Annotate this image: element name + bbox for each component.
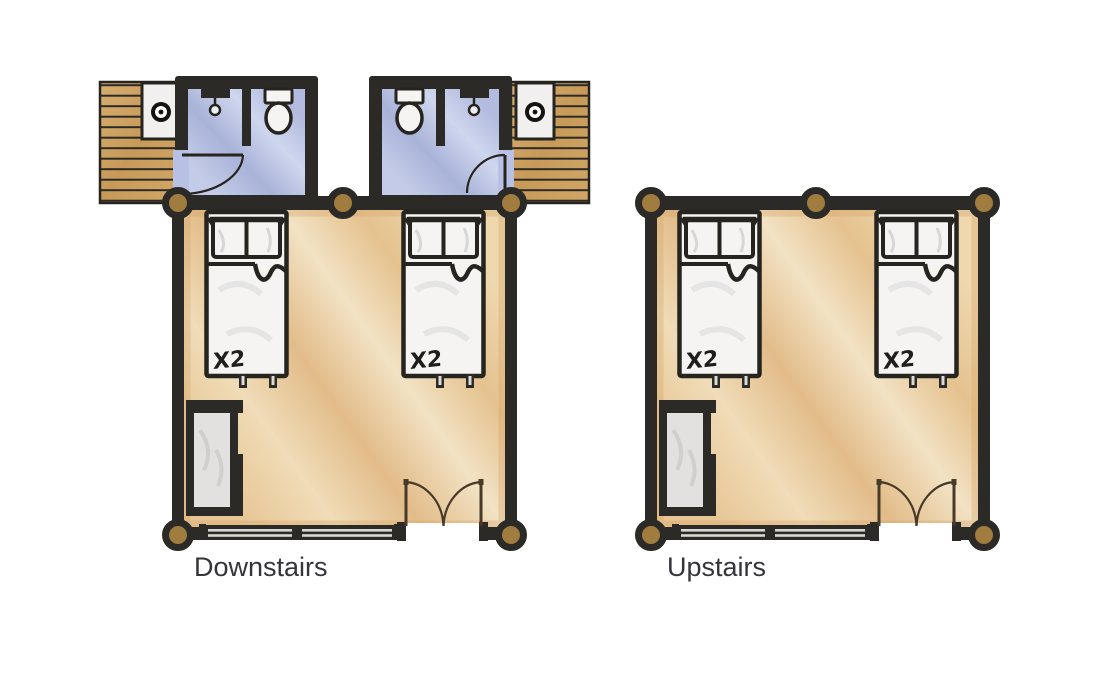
bathroom-left (173, 76, 318, 203)
wardrobe (659, 400, 716, 516)
floor-plan-page: X2 X2 Downstairs X2 X2 Upstairs (0, 0, 1100, 688)
water-heater-icon (516, 83, 554, 139)
upstairs-unit: X2 X2 Upstairs (639, 191, 997, 583)
toilet-icon (396, 89, 423, 133)
bed-capacity-label: X2 (213, 347, 245, 375)
bed-capacity-label: X2 (686, 347, 718, 375)
downstairs-unit: X2 X2 Downstairs (100, 76, 589, 582)
bed-capacity-label: X2 (883, 347, 915, 375)
bed-capacity-label: X2 (410, 347, 442, 375)
unit-label-upstairs: Upstairs (667, 552, 766, 582)
shower-mount (201, 86, 230, 98)
floor-plan-drawing: X2 X2 Downstairs X2 X2 Upstairs (0, 0, 1100, 688)
shower-partition-wall (242, 89, 251, 146)
wardrobe (186, 400, 243, 516)
unit-label-downstairs: Downstairs (194, 552, 328, 582)
bathroom-right (369, 76, 514, 203)
shower-partition-wall (436, 89, 445, 146)
water-heater-icon (142, 83, 180, 139)
toilet-icon (265, 89, 292, 133)
shower-mount (460, 86, 489, 98)
